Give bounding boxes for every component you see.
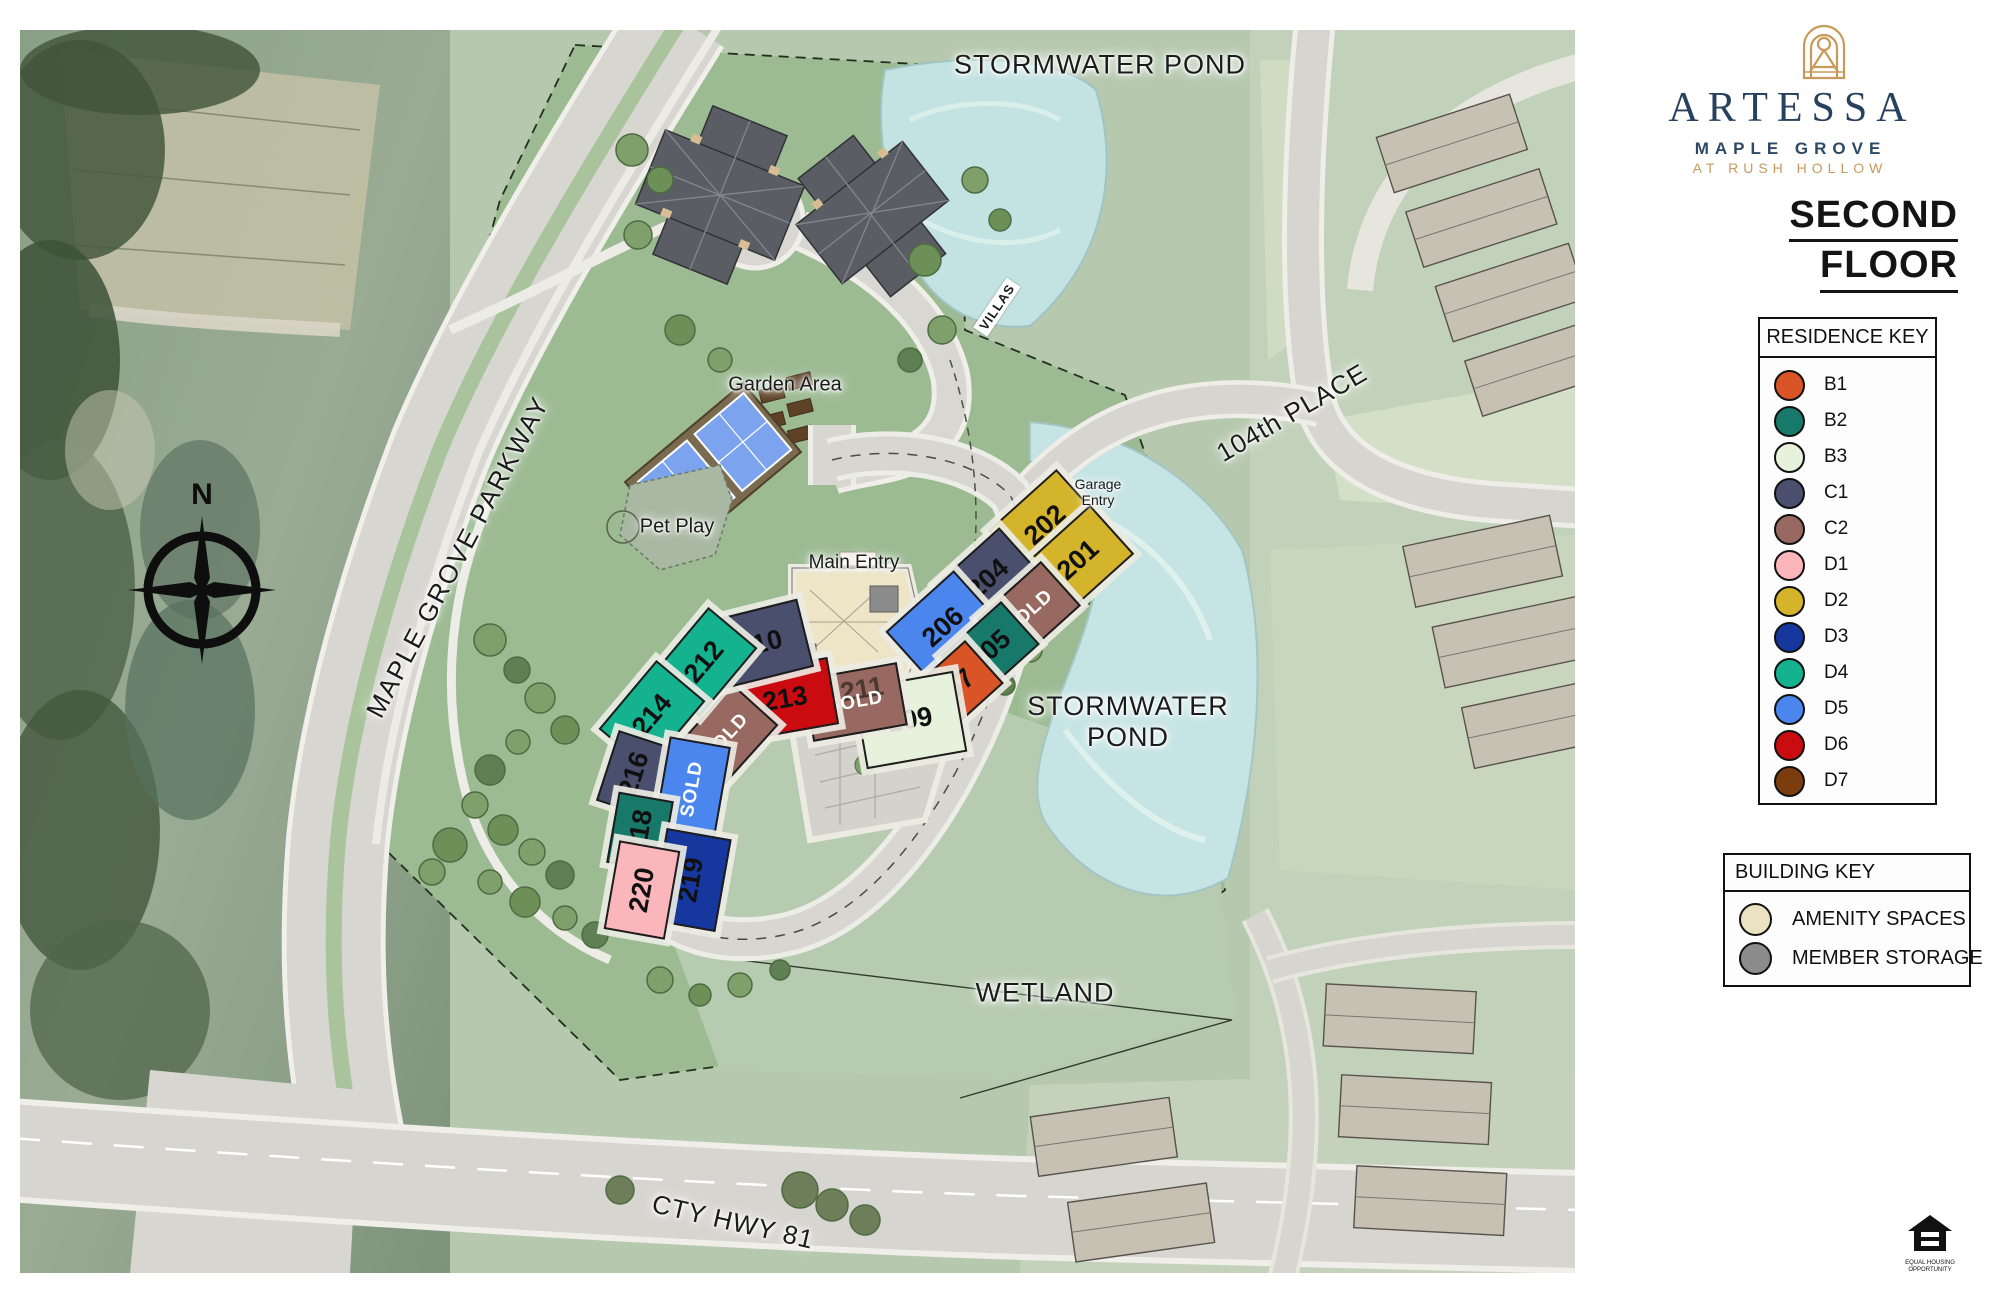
unit-sold-label: SOLD [678, 759, 707, 818]
building-key-label: MEMBER STORAGE [1792, 947, 1983, 970]
residence-key-item: C1 [1774, 475, 1935, 511]
residence-color-swatch [1774, 766, 1805, 797]
unit-number: 214 [627, 689, 677, 741]
residence-key: RESIDENCE KEY B1B2B3C1C2D1D2D3D4D5D6D7 [1758, 317, 1937, 805]
label-garden-area: Garden Area [728, 374, 841, 397]
floor-title: SECOND FLOOR [1789, 192, 1958, 293]
building-key-items: AMENITY SPACESMEMBER STORAGE [1725, 892, 1969, 978]
residence-key-item: D5 [1774, 691, 1935, 727]
residence-color-swatch [1774, 514, 1805, 545]
unit-number: 201 [1052, 535, 1104, 585]
residence-code-label: D6 [1824, 734, 1848, 756]
site-plan-map: 202201204206SOLD205207209211SOLD213SOLD2… [20, 30, 1575, 1273]
equal-housing-house-icon [1908, 1215, 1952, 1255]
residence-key-item: D6 [1774, 727, 1935, 763]
residence-key-item: B1 [1774, 367, 1935, 403]
artessa-logo-icon [1788, 20, 1860, 82]
building-key-label: AMENITY SPACES [1792, 908, 1966, 931]
residence-key-items: B1B2B3C1C2D1D2D3D4D5D6D7 [1760, 358, 1935, 799]
residence-code-label: D7 [1824, 770, 1848, 792]
residence-key-item: B2 [1774, 403, 1935, 439]
residence-code-label: D3 [1824, 626, 1848, 648]
residence-color-swatch [1774, 586, 1805, 617]
brand-name: ARTESSA [1575, 84, 2000, 132]
residence-units: 202201204206SOLD205207209211SOLD213SOLD2… [20, 30, 1575, 1273]
label-pet-play: Pet Play [640, 516, 714, 539]
residence-code-label: B1 [1824, 374, 1847, 396]
label-stormwater-pond-top: STORMWATER POND [954, 50, 1246, 81]
residence-key-item: D7 [1774, 763, 1935, 799]
residence-key-item: D1 [1774, 547, 1935, 583]
residence-code-label: B3 [1824, 446, 1847, 468]
residence-color-swatch [1774, 730, 1805, 761]
residence-key-item: D4 [1774, 655, 1935, 691]
residence-code-label: D2 [1824, 590, 1848, 612]
equal-housing-logo: EQUAL HOUSING OPPORTUNITY [1900, 1215, 1960, 1273]
residence-color-swatch [1774, 694, 1805, 725]
label-main-entry: Main Entry [809, 552, 900, 574]
building-key-item: MEMBER STORAGE [1739, 939, 1969, 978]
residence-key-item: C2 [1774, 511, 1935, 547]
unit-number: 212 [679, 636, 729, 688]
page: 202201204206SOLD205207209211SOLD213SOLD2… [0, 0, 2000, 1294]
unit-number: 219 [674, 855, 708, 904]
equal-housing-caption: EQUAL HOUSING OPPORTUNITY [1900, 1260, 1960, 1273]
building-color-swatch [1739, 903, 1772, 936]
residence-color-swatch [1774, 658, 1805, 689]
residence-code-label: D4 [1824, 662, 1848, 684]
sidebar: ARTESSA MAPLE GROVE AT RUSH HOLLOW SECON… [1575, 0, 2000, 1294]
residence-color-swatch [1774, 550, 1805, 581]
residence-code-label: B2 [1824, 410, 1847, 432]
residence-code-label: D1 [1824, 554, 1848, 576]
label-wetland: WETLAND [975, 978, 1114, 1009]
residence-key-title: RESIDENCE KEY [1760, 319, 1935, 358]
unit-number: 220 [625, 865, 659, 914]
label-stormwater-pond-right: STORMWATER POND [1027, 691, 1229, 753]
label-garage-entry: Garage Entry [1075, 476, 1122, 508]
brand-location: MAPLE GROVE [1575, 139, 2000, 159]
residence-code-label: C2 [1824, 518, 1848, 540]
residence-color-swatch [1774, 622, 1805, 653]
residence-color-swatch [1774, 370, 1805, 401]
building-color-swatch [1739, 942, 1772, 975]
unit-number: 213 [760, 682, 809, 716]
brand-tagline: AT RUSH HOLLOW [1575, 160, 2000, 176]
building-key-item: AMENITY SPACES [1739, 900, 1969, 939]
residence-color-swatch [1774, 406, 1805, 437]
building-key: BUILDING KEY AMENITY SPACESMEMBER STORAG… [1723, 853, 1971, 987]
label-compass-n: N [191, 478, 213, 512]
residence-code-label: C1 [1824, 482, 1848, 504]
residence-key-item: D3 [1774, 619, 1935, 655]
residence-key-item: B3 [1774, 439, 1935, 475]
residence-code-label: D5 [1824, 698, 1848, 720]
residence-color-swatch [1774, 478, 1805, 509]
residence-color-swatch [1774, 442, 1805, 473]
building-key-title: BUILDING KEY [1725, 855, 1969, 892]
residence-key-item: D2 [1774, 583, 1935, 619]
